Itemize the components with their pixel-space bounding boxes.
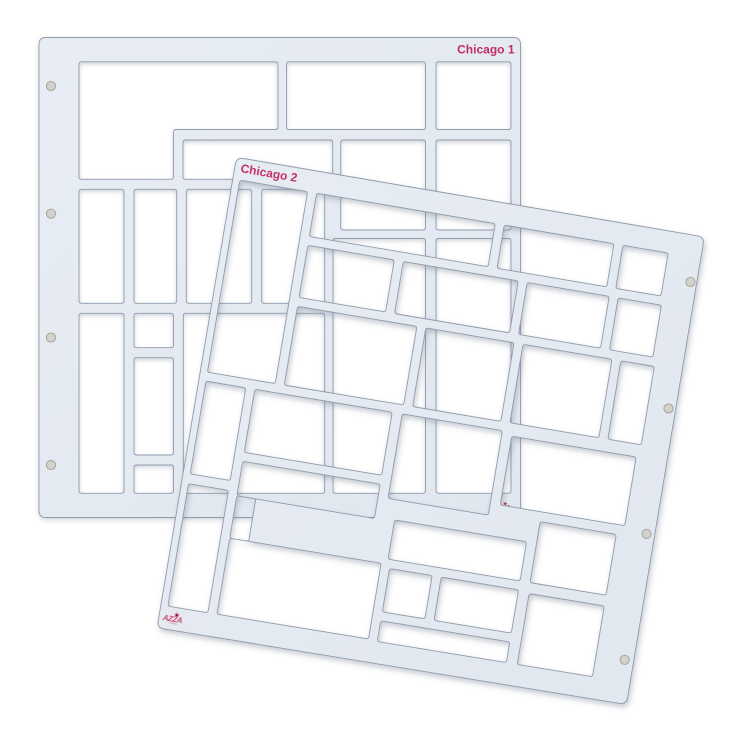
svg-text:Chicago 1: Chicago 1 [457,43,515,57]
